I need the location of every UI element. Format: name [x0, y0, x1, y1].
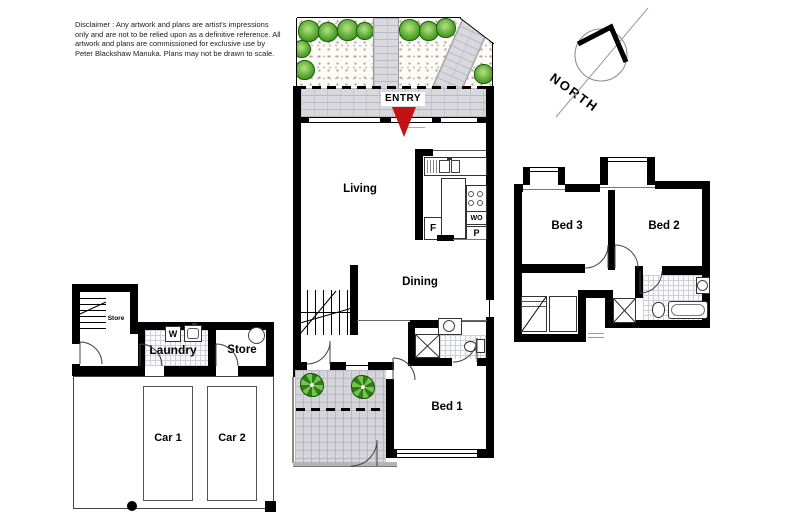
wall [138, 366, 142, 376]
kitchen-sink [439, 160, 450, 173]
window [486, 300, 494, 317]
wall-oven-label: WO [466, 211, 487, 225]
stair-tread-line [521, 306, 547, 307]
wall [635, 266, 643, 298]
wall [330, 362, 346, 370]
garden-border [492, 42, 493, 88]
wall [208, 366, 216, 376]
bush-icon [474, 64, 493, 84]
sink-drainer [427, 160, 438, 173]
tap-icon [447, 157, 452, 160]
kitchen-bulkhead-line [433, 150, 486, 151]
window-line [523, 171, 565, 172]
dining-label: Dining [394, 276, 446, 288]
wall [293, 362, 307, 370]
wall [238, 366, 274, 376]
window-line [600, 161, 655, 162]
living-label: Living [334, 183, 386, 195]
window-line [489, 300, 490, 317]
store-label: Store [216, 344, 268, 356]
washer-label: W [165, 326, 181, 342]
step-line [588, 333, 604, 334]
hotplate-icon [468, 191, 474, 197]
wall [477, 358, 486, 366]
bed2-label: Bed 2 [637, 220, 691, 232]
tub-bowl-icon [187, 328, 199, 339]
courtyard-dashed-line [296, 408, 384, 411]
wall [80, 366, 138, 376]
basin-icon [443, 320, 455, 332]
wall [514, 264, 585, 273]
bay-window-stub [558, 167, 565, 185]
wall [72, 364, 80, 376]
toilet-icon [652, 302, 665, 318]
wall [72, 284, 138, 292]
window-line [397, 453, 477, 454]
wall [432, 117, 441, 123]
wall [164, 366, 208, 376]
hotplate-icon [477, 191, 483, 197]
car1-label: Car 1 [142, 432, 194, 444]
wall [386, 379, 394, 451]
kitchen-island-bench [441, 178, 466, 239]
wall [514, 334, 586, 342]
step-line [588, 337, 604, 338]
wall [514, 184, 523, 192]
wall [662, 266, 710, 275]
wall [380, 117, 391, 123]
bed1-label: Bed 1 [421, 401, 473, 413]
floor-plan-canvas: Disclaimer : Any artwork and plans are a… [0, 0, 790, 527]
bush-icon [297, 60, 315, 80]
bathtub-inner [671, 304, 705, 316]
disclaimer-line: artwork and plans are commissioned for e… [75, 39, 305, 49]
stair-tread-line [521, 301, 547, 302]
window-sill-line [523, 189, 565, 190]
north-label: NORTH [547, 70, 601, 115]
front-garden-bed [297, 18, 493, 88]
linen-cupboard [613, 298, 636, 323]
hotplate-icon [468, 200, 474, 206]
wall [477, 117, 486, 123]
wall [437, 235, 454, 241]
window-line [523, 167, 565, 168]
garden-corner-cut [460, 18, 493, 44]
kitchen-floor-line [453, 239, 486, 240]
pantry-label: P [466, 226, 487, 240]
disclaimer-line: Disclaimer : Any artwork and plans are a… [75, 20, 305, 30]
wall [72, 284, 80, 344]
wall [415, 149, 433, 156]
entry-arrow-icon [392, 107, 416, 137]
disclaimer-line: only and are not to be relied upon as a … [75, 30, 305, 40]
entry-label: ENTRY [381, 92, 425, 106]
wall [350, 265, 358, 335]
disclaimer-text: Disclaimer : Any artwork and plans are a… [75, 20, 305, 58]
bush-icon [356, 22, 374, 40]
window-line [346, 365, 370, 366]
car2-label: Car 2 [206, 432, 258, 444]
kitchen-sink [451, 160, 460, 173]
window-line [600, 157, 655, 158]
stair-mid-line [299, 312, 352, 313]
compass-icon [556, 8, 648, 117]
bed3-label: Bed 3 [540, 220, 594, 232]
store-upper-label: Store [100, 315, 132, 322]
column-icon [127, 501, 137, 511]
bush-icon [436, 18, 456, 38]
bush-icon [297, 40, 311, 58]
disclaimer-line: Peter Blackshaw Manuka. Plans may not be… [75, 49, 305, 59]
basin-icon [697, 280, 708, 291]
gate-post [265, 501, 276, 512]
courtyard-edge [293, 462, 397, 467]
garden-border [297, 17, 461, 18]
wall [486, 86, 494, 458]
toilet-icon [464, 341, 477, 352]
hotplate-icon [477, 200, 483, 206]
bush-icon [318, 22, 338, 42]
courtyard-fence [292, 377, 294, 463]
plant-icon [300, 373, 324, 397]
window-sill-line [600, 187, 655, 188]
bush-icon [399, 19, 421, 41]
bush-icon [298, 20, 320, 42]
wardrobe [549, 296, 577, 332]
bay-window-stub [523, 167, 530, 185]
wall [408, 358, 452, 366]
wall [368, 362, 394, 370]
garden-path [373, 18, 399, 88]
toilet-cistern-icon [476, 339, 485, 353]
wall [608, 190, 615, 270]
bath-bench-line [462, 321, 486, 322]
wall [301, 117, 309, 123]
garden-border [296, 18, 297, 88]
cooktop [467, 190, 486, 208]
plant-icon [351, 375, 375, 399]
laundry-label: Laundry [140, 343, 206, 357]
wall [130, 284, 138, 334]
tap-icon [192, 323, 197, 325]
linen-cupboard [415, 334, 440, 358]
wall [408, 322, 415, 360]
wall [565, 184, 600, 192]
hot-water-unit-icon [248, 327, 265, 344]
boundary-dashed-line [297, 86, 487, 89]
wall [415, 149, 423, 240]
